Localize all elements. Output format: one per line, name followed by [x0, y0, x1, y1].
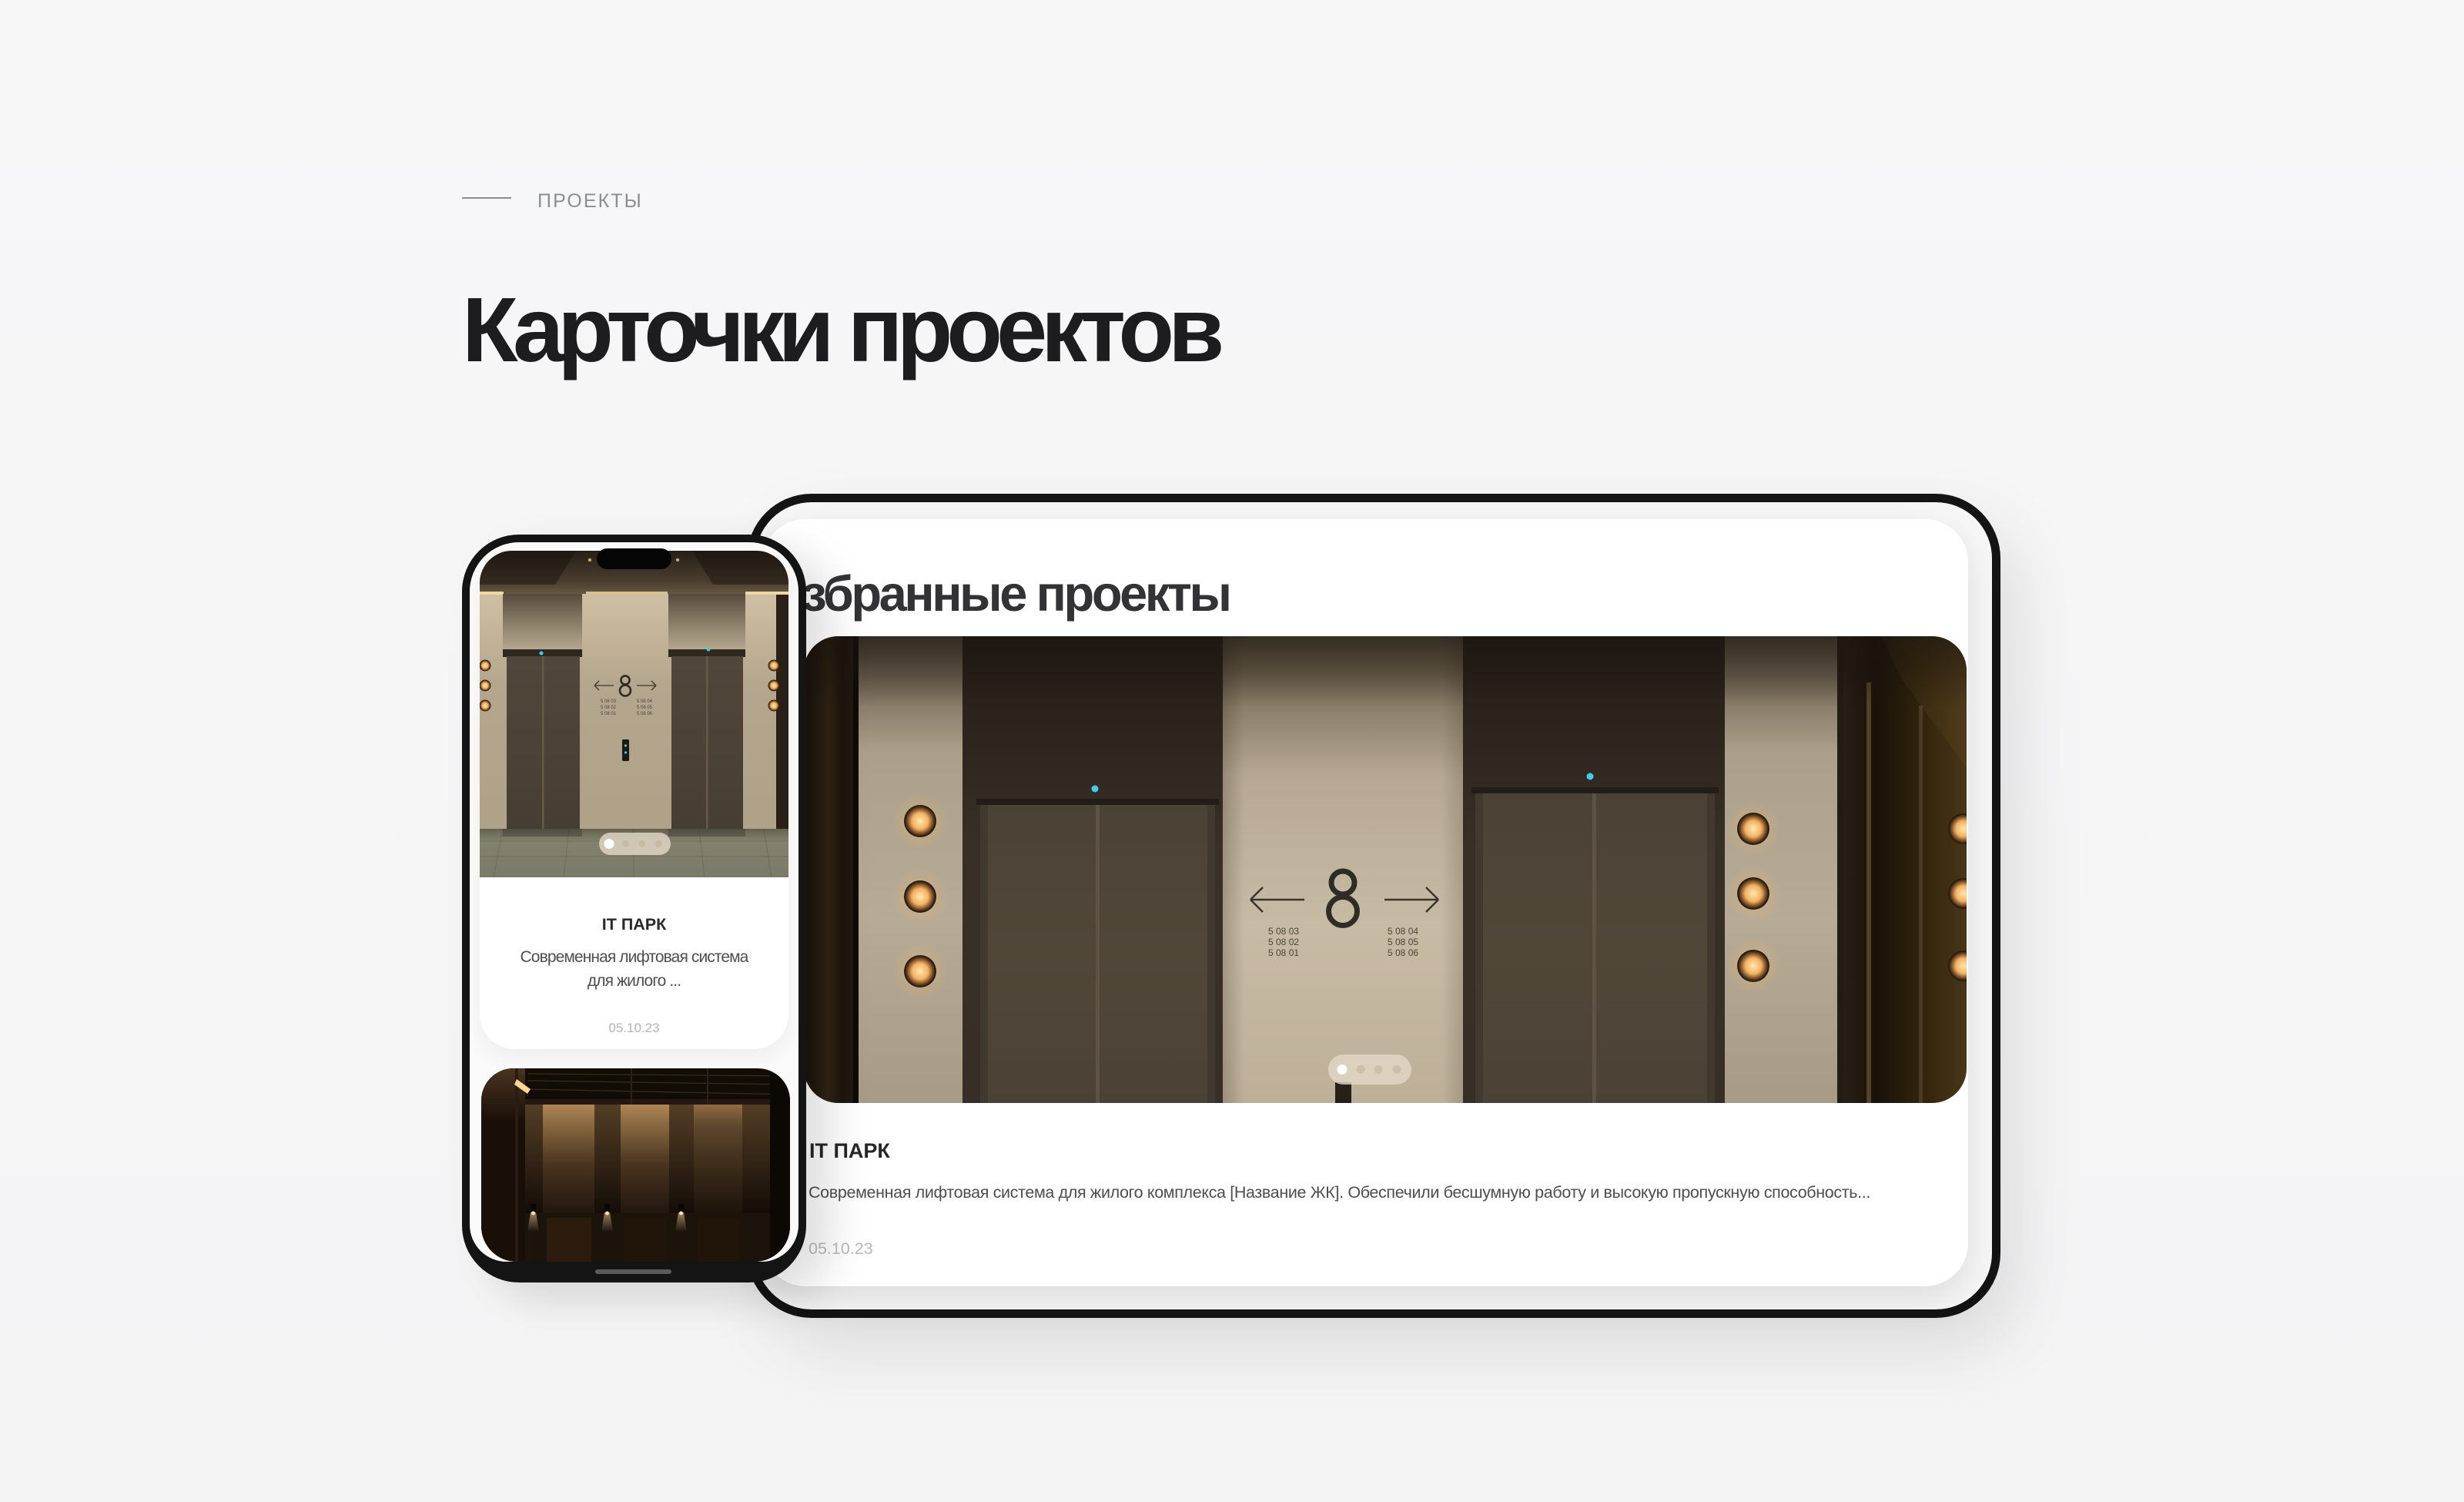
svg-text:5 08 04: 5 08 04: [1388, 926, 1418, 937]
svg-text:5 08 06: 5 08 06: [1388, 947, 1418, 958]
svg-text:5 08 02: 5 08 02: [1268, 937, 1299, 947]
svg-text:5 08 02: 5 08 02: [601, 706, 617, 710]
svg-text:5 08 01: 5 08 01: [1268, 947, 1299, 958]
svg-text:5 08 03: 5 08 03: [601, 699, 617, 704]
svg-text:5 08 05: 5 08 05: [1388, 937, 1418, 947]
svg-text:5 08 01: 5 08 01: [601, 712, 617, 716]
svg-text:5 08 04: 5 08 04: [637, 699, 653, 704]
svg-text:5 08 05: 5 08 05: [637, 706, 653, 710]
svg-text:5 08 06: 5 08 06: [637, 712, 653, 716]
svg-text:5 08 03: 5 08 03: [1268, 926, 1299, 937]
